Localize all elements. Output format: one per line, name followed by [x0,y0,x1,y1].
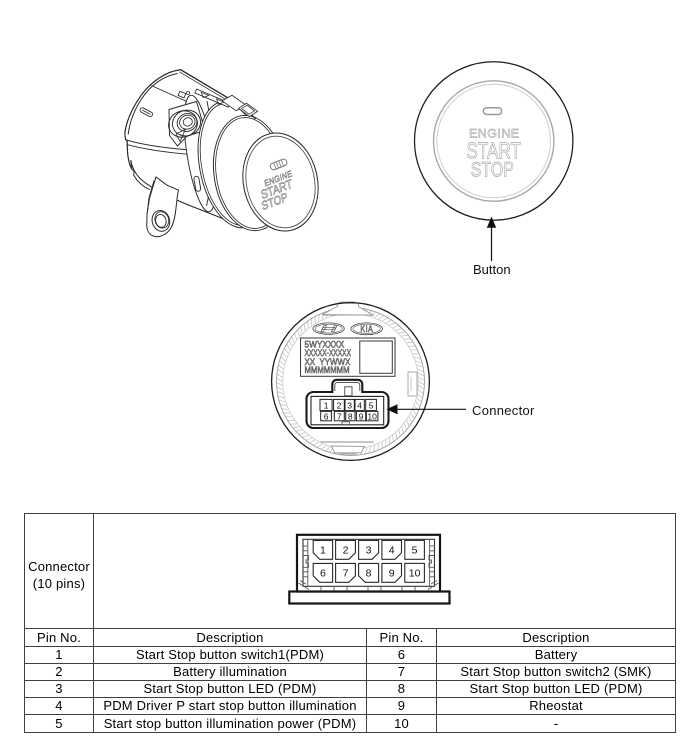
svg-text:2: 2 [343,545,349,557]
svg-text:MMMMMMM: MMMMMMM [305,365,350,375]
svg-text:8: 8 [348,411,353,421]
svg-text:3: 3 [366,545,372,557]
svg-text:7: 7 [337,411,342,421]
svg-text:6: 6 [320,568,326,580]
svg-text:Connector: Connector [472,403,535,418]
svg-text:2: 2 [337,400,342,410]
svg-text:10: 10 [367,411,377,421]
svg-text:STOP: STOP [471,158,514,182]
svg-text:4: 4 [357,400,362,410]
svg-text:3: 3 [347,400,352,410]
svg-text:4: 4 [389,545,395,557]
svg-text:10: 10 [409,568,421,580]
svg-text:5: 5 [369,400,374,410]
svg-text:5: 5 [412,545,418,557]
svg-text:KIA: KIA [360,324,373,334]
svg-text:Button: Button [473,262,511,277]
svg-text:8: 8 [366,568,372,580]
svg-text:1: 1 [324,400,329,410]
svg-text:7: 7 [343,568,349,580]
svg-text:6: 6 [324,411,329,421]
svg-text:9: 9 [359,411,364,421]
svg-text:1: 1 [320,545,326,557]
svg-text:9: 9 [389,568,395,580]
